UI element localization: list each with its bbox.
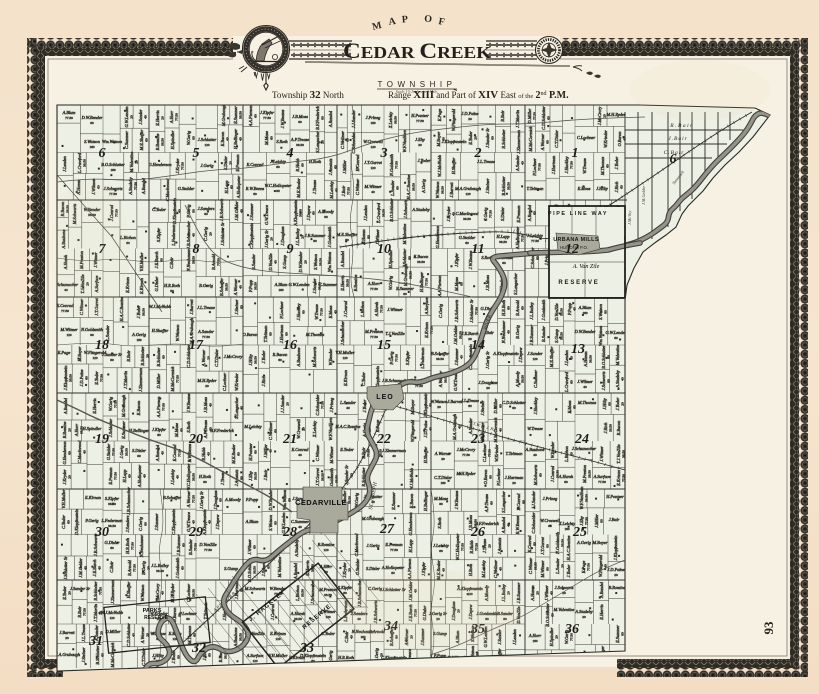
- svg-text:40: 40: [239, 137, 243, 141]
- svg-text:C.Mackwood: C.Mackwood: [77, 440, 82, 464]
- svg-text:R.Bair: R.Bair: [126, 350, 131, 363]
- svg-text:T.Teitman: T.Teitman: [527, 186, 544, 191]
- svg-text:60: 60: [186, 617, 190, 621]
- svg-text:60: 60: [335, 188, 339, 192]
- svg-text:C.Bair: C.Bair: [109, 561, 114, 573]
- svg-text:S.Watson: S.Watson: [268, 515, 273, 531]
- svg-text:77.50: 77.50: [61, 309, 69, 313]
- svg-text:77.50: 77.50: [533, 112, 537, 120]
- svg-text:E.Kirnan: E.Kirnan: [139, 278, 144, 295]
- svg-text:D.W.Bender: D.W.Bender: [81, 115, 103, 120]
- svg-text:80: 80: [240, 476, 244, 480]
- svg-text:S.Kipfer: S.Kipfer: [338, 585, 353, 590]
- svg-text:S.Watson: S.Watson: [313, 254, 318, 270]
- svg-text:E.Conrad: E.Conrad: [355, 154, 360, 173]
- svg-text:J.Yoder: J.Yoder: [615, 397, 620, 410]
- svg-text:80: 80: [269, 332, 273, 336]
- svg-text:120: 120: [109, 616, 114, 620]
- svg-text:40: 40: [178, 209, 182, 213]
- svg-text:M.E.Shaffer: M.E.Shaffer: [336, 232, 358, 237]
- svg-text:M.Mase: M.Mase: [433, 496, 448, 501]
- svg-text:77.50: 77.50: [390, 548, 398, 552]
- svg-text:E.Conrad: E.Conrad: [527, 535, 532, 554]
- svg-text:W.J.McNabb: W.J.McNabb: [409, 467, 414, 490]
- svg-text:80: 80: [177, 655, 181, 659]
- svg-text:M.E.Shaffer: M.E.Shaffer: [549, 346, 554, 368]
- svg-text:20: 20: [146, 633, 150, 637]
- svg-text:38.50: 38.50: [609, 424, 613, 432]
- svg-text:D.VanZile: D.VanZile: [554, 303, 559, 321]
- svg-text:80: 80: [285, 332, 289, 336]
- svg-text:40: 40: [621, 377, 625, 381]
- svg-text:M.Preston: M.Preston: [364, 329, 383, 334]
- svg-text:77.50: 77.50: [320, 308, 324, 316]
- svg-text:77.50: 77.50: [521, 234, 525, 242]
- svg-text:60: 60: [507, 306, 511, 310]
- svg-text:20: 20: [614, 573, 618, 577]
- svg-text:D.W.Bender: D.W.Bender: [268, 489, 273, 511]
- svg-text:J.McCrory: J.McCrory: [457, 447, 476, 452]
- svg-text:20: 20: [474, 136, 478, 140]
- svg-text:15: 15: [377, 338, 391, 353]
- svg-text:A.Bandel: A.Bandel: [340, 250, 345, 268]
- svg-text:17: 17: [189, 338, 204, 353]
- svg-text:J.Schlatter Sr: J.Schlatter Sr: [469, 299, 474, 323]
- svg-text:W.Watson: W.Watson: [140, 585, 145, 602]
- svg-text:J.T.Martin: J.T.Martin: [93, 604, 98, 622]
- svg-text:120: 120: [342, 356, 347, 360]
- svg-text:N.Neuhauser: N.Neuhauser: [501, 320, 506, 344]
- svg-text:R.Hubb: R.Hubb: [469, 540, 474, 555]
- svg-text:S.Langacher: S.Langacher: [513, 273, 518, 295]
- svg-text:A.Buuhone: A.Buuhone: [233, 627, 238, 647]
- svg-text:40: 40: [350, 635, 354, 639]
- svg-text:R.W.Benns: R.W.Benns: [515, 515, 520, 535]
- svg-text:38.50: 38.50: [521, 375, 525, 383]
- svg-text:40: 40: [226, 137, 230, 141]
- svg-text:J.Douglass: J.Douglass: [478, 380, 498, 385]
- svg-text:40: 40: [298, 525, 302, 529]
- svg-text:A.Warner: A.Warner: [186, 490, 191, 508]
- svg-text:E.Summer: E.Summer: [391, 492, 396, 511]
- svg-text:38.50: 38.50: [294, 617, 302, 621]
- svg-text:H.Shaffer: H.Shaffer: [451, 157, 456, 175]
- svg-text:J.Bair: J.Bair: [341, 185, 346, 196]
- svg-text:38.50: 38.50: [417, 260, 425, 264]
- svg-text:40: 40: [144, 115, 148, 119]
- svg-text:M.Mase: M.Mase: [264, 131, 269, 146]
- svg-text:60: 60: [276, 165, 280, 169]
- svg-text:40: 40: [269, 449, 273, 453]
- svg-text:M.Witmer: M.Witmer: [329, 446, 334, 464]
- svg-text:J.Prineg: J.Prineg: [329, 397, 334, 413]
- svg-text:160: 160: [110, 168, 115, 172]
- svg-text:V.H.Muller: V.H.Muller: [335, 350, 354, 355]
- svg-text:80: 80: [90, 121, 94, 125]
- svg-text:O.Baron: O.Baron: [243, 332, 258, 337]
- svg-text:60: 60: [570, 380, 574, 384]
- svg-text:J.Gerig Sr: J.Gerig Sr: [199, 491, 204, 509]
- svg-text:D.W.Bender: D.W.Bender: [298, 251, 303, 273]
- svg-text:80: 80: [68, 451, 72, 455]
- svg-text:20: 20: [488, 544, 492, 548]
- svg-text:W.F.VanHorn: W.F.VanHorn: [328, 418, 333, 441]
- svg-text:C.Gerig: C.Gerig: [138, 516, 143, 531]
- svg-text:20: 20: [229, 161, 233, 165]
- svg-text:L.Federman: L.Federman: [100, 518, 122, 523]
- svg-text:Wm.Watson: Wm.Watson: [102, 139, 122, 144]
- svg-text:E.Kirnan: E.Kirnan: [84, 495, 101, 500]
- svg-text:40: 40: [298, 453, 302, 457]
- svg-text:A.Surface: A.Surface: [593, 474, 611, 479]
- svg-text:4: 4: [286, 146, 294, 161]
- svg-text:J.Schumacher: J.Schumacher: [340, 321, 345, 346]
- svg-text:60: 60: [67, 520, 71, 524]
- svg-text:A.Blum: A.Blum: [274, 282, 288, 287]
- svg-text:A.Gerig: A.Gerig: [131, 332, 147, 337]
- svg-text:Township 32 North: Township 32 North: [272, 89, 344, 101]
- svg-text:E.Herrin: E.Herrin: [340, 275, 345, 291]
- svg-text:C.Bair: C.Bair: [169, 257, 174, 269]
- svg-text:A.Sander: A.Sander: [515, 155, 520, 172]
- svg-text:A.Bandel: A.Bandel: [599, 581, 604, 599]
- svg-text:J.Leichty: J.Leichty: [170, 469, 175, 485]
- svg-text:W.Trease: W.Trease: [527, 426, 543, 431]
- svg-text:O: O: [424, 14, 433, 26]
- svg-text:W.Croswell: W.Croswell: [363, 139, 383, 144]
- svg-text:C.D.Schlatter: C.D.Schlatter: [502, 400, 526, 405]
- svg-text:J.Prineg: J.Prineg: [543, 496, 559, 501]
- svg-text:20: 20: [555, 635, 559, 639]
- svg-text:18: 18: [95, 338, 109, 353]
- svg-text:A.Surface: A.Surface: [424, 297, 429, 315]
- svg-text:C.T.Disler: C.T.Disler: [214, 349, 219, 367]
- svg-text:J.B.Summer: J.B.Summer: [176, 534, 181, 555]
- svg-text:38.50: 38.50: [156, 569, 164, 573]
- svg-text:M.Schwartz: M.Schwartz: [533, 464, 538, 486]
- svg-text:J.Yoder: J.Yoder: [614, 156, 619, 169]
- svg-text:J.T.Garret: J.T.Garret: [540, 536, 545, 554]
- svg-text:80: 80: [546, 544, 550, 548]
- svg-text:S.Disler: S.Disler: [500, 207, 505, 221]
- svg-text:60: 60: [551, 613, 555, 617]
- svg-text:Wm.Watson: Wm.Watson: [598, 326, 603, 346]
- svg-text:P.Gerig: P.Gerig: [84, 518, 99, 523]
- svg-text:S.Roth: S.Roth: [186, 421, 191, 432]
- svg-text:J.Summer: J.Summer: [454, 348, 459, 365]
- svg-text:R.Bair: R.Bair: [500, 110, 505, 123]
- svg-text:J.Rich: J.Rich: [614, 182, 619, 193]
- svg-text:27: 27: [379, 522, 395, 537]
- svg-text:O.Baron: O.Baron: [483, 470, 488, 485]
- svg-text:E.Summer: E.Summer: [615, 625, 620, 644]
- svg-text:77.50: 77.50: [100, 374, 104, 382]
- svg-text:P: P: [401, 14, 408, 25]
- svg-text:60: 60: [270, 136, 274, 140]
- svg-text:60: 60: [254, 114, 258, 118]
- svg-text:77.50: 77.50: [181, 162, 185, 170]
- svg-text:38.50: 38.50: [254, 356, 258, 364]
- svg-text:38.50: 38.50: [161, 138, 165, 146]
- svg-text:H.R.Roth: H.R.Roth: [337, 655, 354, 660]
- svg-text:S.Disler: S.Disler: [132, 448, 146, 453]
- svg-text:A.Hollopeter: A.Hollopeter: [137, 465, 142, 489]
- svg-text:60: 60: [145, 138, 149, 142]
- svg-text:S.Langacher: S.Langacher: [234, 397, 239, 419]
- svg-text:80: 80: [110, 358, 114, 362]
- svg-text:20: 20: [468, 117, 472, 121]
- svg-text:23: 23: [470, 432, 485, 447]
- svg-text:H.Shaffer: H.Shaffer: [423, 446, 428, 464]
- svg-text:W.Krieder: W.Krieder: [494, 444, 499, 462]
- svg-text:H.Pontser: H.Pontser: [605, 494, 624, 499]
- svg-text:25: 25: [572, 525, 587, 540]
- svg-text:M.Valentine: M.Valentine: [402, 224, 407, 246]
- svg-text:40: 40: [192, 520, 196, 524]
- svg-text:38.50: 38.50: [239, 633, 243, 641]
- svg-text:E.Krimm: E.Krimm: [269, 631, 286, 636]
- svg-text:H.Lapp: H.Lapp: [224, 180, 229, 195]
- svg-text:160: 160: [136, 338, 141, 342]
- svg-text:J.Miller: J.Miller: [342, 160, 347, 174]
- svg-text:A.Hursh: A.Hursh: [374, 302, 379, 317]
- svg-text:N.Neuhauser: N.Neuhauser: [139, 534, 144, 558]
- svg-text:28: 28: [282, 525, 297, 540]
- svg-text:J.L.Trease: J.L.Trease: [197, 305, 215, 310]
- svg-text:M.McCormick: M.McCormick: [110, 642, 115, 668]
- svg-text:L.Crawford: L.Crawford: [77, 152, 82, 174]
- svg-text:J.B.Schumacher: J.B.Schumacher: [126, 487, 131, 515]
- svg-text:J.Conrad: J.Conrad: [550, 465, 555, 482]
- svg-text:J.Hilty: J.Hilty: [602, 398, 607, 410]
- svg-text:1: 1: [572, 146, 579, 161]
- svg-text:M.Grubaugh: M.Grubaugh: [221, 104, 226, 127]
- svg-text:B.F.Frederick: B.F.Frederick: [315, 106, 320, 130]
- svg-text:A.Studeby: A.Studeby: [411, 207, 429, 212]
- svg-text:W.C.Hollopeter: W.C.Hollopeter: [455, 533, 460, 560]
- svg-text:60: 60: [606, 164, 610, 168]
- svg-text:77.50: 77.50: [622, 474, 626, 482]
- svg-text:V.H.Muller: V.H.Muller: [61, 489, 66, 508]
- svg-text:J.Zimmerman: J.Zimmerman: [516, 130, 521, 154]
- svg-text:38.50: 38.50: [585, 494, 589, 502]
- svg-text:J.Kipfer: J.Kipfer: [260, 110, 274, 115]
- svg-text:E.Preman: E.Preman: [235, 154, 240, 172]
- svg-text:120: 120: [370, 145, 375, 149]
- svg-text:J.Sander Sr: J.Sander Sr: [344, 465, 349, 485]
- svg-text:77.50: 77.50: [176, 375, 180, 383]
- svg-text:J.M.Gelder: J.M.Gelder: [234, 201, 239, 221]
- svg-text:J.Barrett: J.Barrett: [59, 630, 75, 635]
- svg-text:S.Kipfer: S.Kipfer: [156, 228, 161, 243]
- svg-text:E.Bacon: E.Bacon: [409, 494, 414, 510]
- svg-text:V.H.Muller: V.H.Muller: [268, 653, 287, 658]
- svg-text:J.M.Gelder: J.M.Gelder: [641, 186, 646, 205]
- svg-text:W.Croswell: W.Croswell: [540, 518, 560, 523]
- svg-text:80: 80: [162, 355, 166, 359]
- svg-text:40: 40: [98, 566, 102, 570]
- svg-text:40: 40: [192, 233, 196, 237]
- svg-text:M.Mase: M.Mase: [174, 423, 179, 438]
- svg-text:B.F.Frederick: B.F.Frederick: [210, 428, 234, 433]
- svg-text:J.Yoder: J.Yoder: [566, 564, 571, 577]
- svg-text:M.Mase: M.Mase: [454, 277, 459, 292]
- svg-text:20: 20: [441, 457, 445, 461]
- svg-text:W.Trease: W.Trease: [314, 304, 319, 320]
- svg-text:B.O.Schlatter: B.O.Schlatter: [389, 198, 394, 222]
- svg-text:T.J.VanZile: T.J.VanZile: [616, 444, 621, 463]
- svg-text:A.Randol: A.Randol: [155, 444, 160, 462]
- svg-text:60: 60: [181, 566, 185, 570]
- svg-text:M.Grubaugh: M.Grubaugh: [361, 516, 384, 521]
- svg-text:77.50: 77.50: [192, 495, 196, 503]
- svg-text:G.W.Lenden: G.W.Lenden: [288, 282, 309, 287]
- svg-text:13: 13: [571, 342, 585, 357]
- svg-text:J.Lenden: J.Lenden: [512, 629, 517, 645]
- svg-text:P.Popp: P.Popp: [567, 302, 572, 316]
- svg-text:60: 60: [208, 653, 212, 657]
- svg-text:20: 20: [418, 143, 422, 147]
- svg-text:C.Mackwood: C.Mackwood: [456, 211, 480, 216]
- svg-text:W.J.McNabb: W.J.McNabb: [149, 304, 172, 309]
- svg-text:J.B.Summer: J.B.Summer: [529, 324, 534, 345]
- svg-text:A.Sander: A.Sander: [197, 329, 214, 334]
- svg-text:A.Warner: A.Warner: [140, 626, 145, 644]
- svg-text:60: 60: [110, 546, 114, 550]
- svg-text:W.Fitzgerald: W.Fitzgerald: [598, 554, 603, 577]
- svg-text:77.50: 77.50: [83, 608, 87, 616]
- svg-text:A.Warner: A.Warner: [540, 133, 545, 151]
- svg-text:H.Shaffer: H.Shaffer: [126, 581, 131, 599]
- svg-text:C.T.Disler: C.T.Disler: [554, 130, 559, 148]
- svg-text:J.Gerig: J.Gerig: [366, 543, 380, 548]
- svg-text:W.Gerig: W.Gerig: [354, 492, 359, 507]
- svg-text:E.Herrin: E.Herrin: [599, 604, 604, 620]
- svg-text:B.Arnold: B.Arnold: [127, 559, 132, 575]
- svg-text:J.Wilmer: J.Wilmer: [577, 379, 593, 384]
- svg-text:77.50: 77.50: [114, 472, 118, 480]
- svg-text:C.Yoder: C.Yoder: [61, 515, 66, 529]
- svg-text:J.Kryder: J.Kryder: [62, 469, 67, 484]
- svg-text:J.Zimmerman: J.Zimmerman: [382, 448, 406, 453]
- svg-text:80: 80: [219, 498, 223, 502]
- svg-text:77.50: 77.50: [570, 161, 574, 169]
- svg-text:M.Thomas: M.Thomas: [577, 400, 597, 405]
- svg-text:J.M.Gelder: J.M.Gelder: [453, 325, 458, 345]
- svg-text:L.Federman: L.Federman: [420, 347, 425, 369]
- svg-text:E.Page: E.Page: [581, 561, 586, 575]
- svg-text:38.50: 38.50: [534, 562, 538, 570]
- svg-text:80: 80: [313, 239, 317, 243]
- svg-text:H.R.Roth: H.R.Roth: [125, 538, 130, 555]
- svg-text:TOWNSHIP: TOWNSHIP: [378, 80, 457, 89]
- svg-text:P.Lochner: P.Lochner: [178, 611, 197, 616]
- svg-text:A.Randol: A.Randol: [328, 110, 333, 128]
- svg-text:6: 6: [670, 152, 677, 167]
- svg-text:B.Romine: B.Romine: [318, 542, 335, 547]
- svg-text:E.Yoder: E.Yoder: [339, 447, 354, 452]
- svg-text:J.Gerig: J.Gerig: [119, 445, 124, 459]
- svg-text:77.50: 77.50: [202, 335, 210, 339]
- svg-text:W.Fitzgerald: W.Fitzgerald: [410, 419, 415, 442]
- svg-text:77.50: 77.50: [395, 161, 399, 169]
- svg-text:120: 120: [252, 659, 257, 663]
- svg-text:W.Watson: W.Watson: [175, 325, 180, 342]
- svg-text:W.C.Hollopeter: W.C.Hollopeter: [265, 183, 292, 188]
- svg-text:W.Gerig: W.Gerig: [108, 396, 113, 411]
- svg-text:J.D.Paine: J.D.Paine: [607, 567, 624, 572]
- svg-text:C.Lochner: C.Lochner: [222, 373, 227, 392]
- svg-text:20: 20: [270, 237, 274, 241]
- svg-text:77.50: 77.50: [395, 354, 399, 362]
- svg-text:J.Schwartz: J.Schwartz: [601, 371, 606, 390]
- svg-text:38.50: 38.50: [560, 308, 564, 316]
- svg-text:J.Kipfer: J.Kipfer: [152, 427, 166, 432]
- svg-text:80: 80: [408, 256, 412, 260]
- svg-text:H.Lapp: H.Lapp: [122, 469, 127, 484]
- svg-text:10: 10: [377, 242, 391, 257]
- svg-text:H.A.C.Romine: H.A.C.Romine: [566, 535, 571, 561]
- svg-text:93: 93: [761, 621, 776, 635]
- svg-text:P.Lochner: P.Lochner: [532, 158, 537, 177]
- svg-text:J.B.Schwartz: J.B.Schwartz: [219, 198, 224, 221]
- svg-text:W.F.VanHorn: W.F.VanHorn: [579, 487, 584, 510]
- svg-text:20: 20: [621, 402, 625, 406]
- svg-text:40: 40: [499, 567, 503, 571]
- svg-text:A.Horr: A.Horr: [528, 633, 542, 638]
- svg-text:A.Randol: A.Randol: [527, 204, 532, 222]
- svg-text:J.Hackley: J.Hackley: [564, 156, 569, 173]
- svg-text:W.Watson: W.Watson: [435, 182, 440, 199]
- svg-text:R.Bair: R.Bair: [77, 606, 82, 619]
- svg-text:J.Summer: J.Summer: [154, 513, 159, 530]
- svg-text:C.T.Disler: C.T.Disler: [434, 475, 452, 480]
- svg-text:J.McVay: J.McVay: [627, 211, 632, 225]
- svg-text:J.Kryder: J.Kryder: [446, 206, 451, 221]
- svg-text:A.Klopfenstein: A.Klopfenstein: [293, 200, 298, 226]
- svg-text:33: 33: [299, 641, 314, 656]
- svg-text:R.Hubb: R.Hubb: [295, 158, 300, 173]
- svg-text:120: 120: [66, 333, 71, 337]
- svg-text:J.Klopfenstein: J.Klopfenstein: [63, 366, 68, 391]
- svg-text:77.50: 77.50: [531, 239, 539, 243]
- svg-text:E.Page: E.Page: [57, 350, 71, 355]
- svg-text:S.Roth: S.Roth: [276, 139, 287, 144]
- svg-text:40: 40: [209, 403, 213, 407]
- svg-text:36: 36: [564, 622, 579, 637]
- svg-text:E.Preman: E.Preman: [108, 467, 113, 485]
- svg-text:W.Gerig: W.Gerig: [388, 275, 393, 290]
- svg-text:M.Boyer: M.Boyer: [410, 399, 415, 415]
- svg-text:J.T.Garret: J.T.Garret: [315, 467, 320, 485]
- svg-text:C.T.Disler: C.T.Disler: [141, 648, 146, 666]
- svg-text:H.Bellinger: H.Bellinger: [423, 491, 428, 512]
- svg-text:3: 3: [380, 146, 388, 161]
- svg-text:J.Zimmerman: J.Zimmerman: [110, 580, 115, 604]
- svg-text:20: 20: [286, 402, 290, 406]
- svg-text:20: 20: [68, 428, 72, 432]
- svg-text:38.50: 38.50: [589, 355, 593, 363]
- svg-text:38.50: 38.50: [239, 111, 243, 119]
- svg-text:B.Schaffer: B.Schaffer: [219, 278, 224, 296]
- svg-text:D.VanZile: D.VanZile: [268, 253, 273, 271]
- svg-text:80: 80: [489, 475, 493, 479]
- svg-text:H.A.C.Romine: H.A.C.Romine: [406, 174, 411, 200]
- svg-text:A.Hollopeter: A.Hollopeter: [515, 227, 520, 251]
- svg-text:A.Gerig: A.Gerig: [421, 178, 426, 194]
- svg-text:77.50: 77.50: [598, 480, 606, 484]
- svg-text:60: 60: [298, 120, 302, 124]
